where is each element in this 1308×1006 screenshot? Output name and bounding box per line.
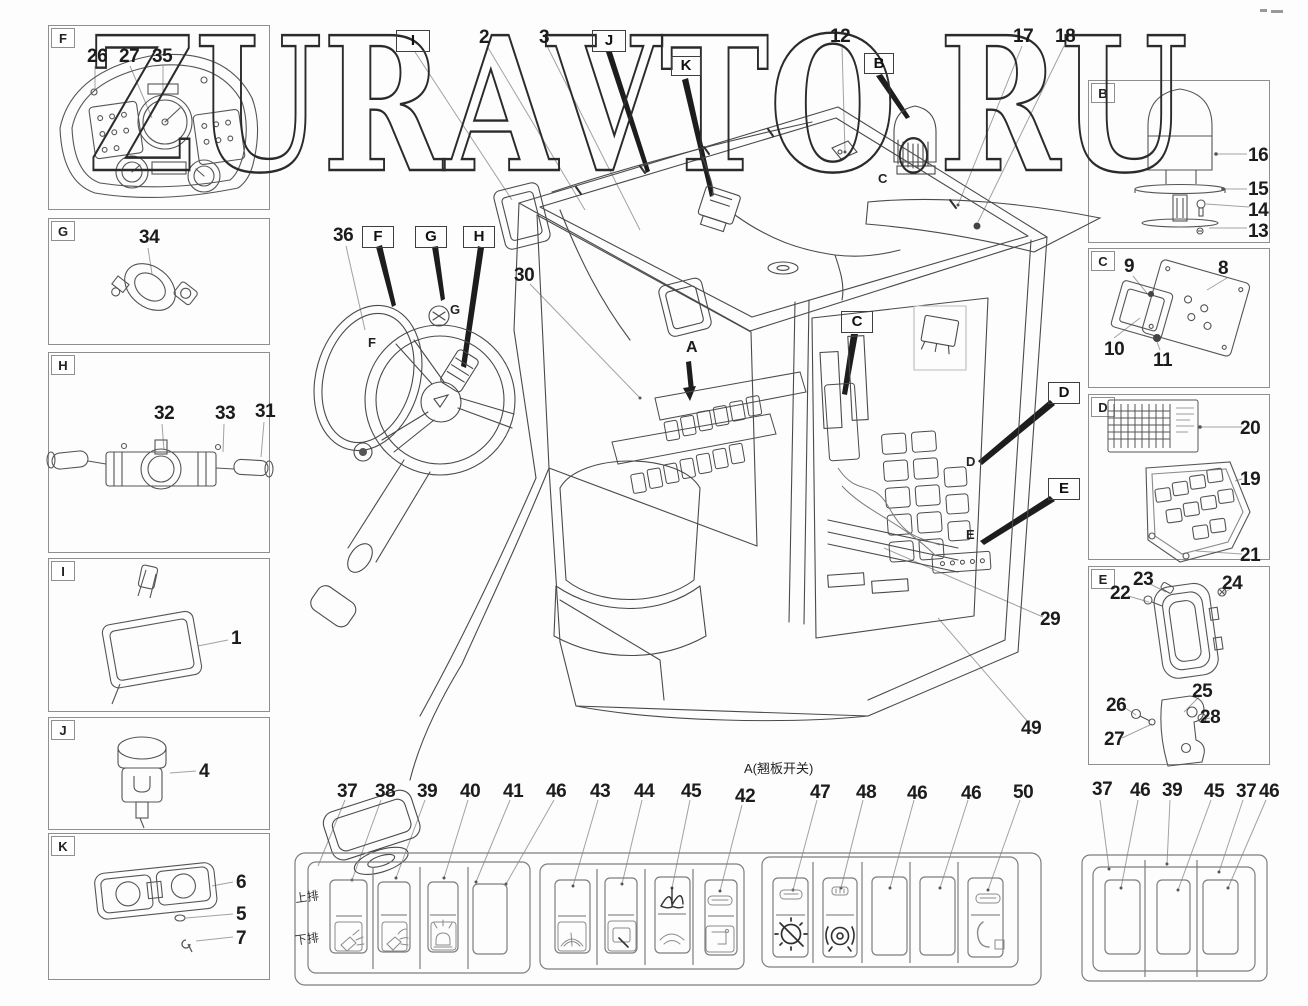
detail-box-H: H [48,352,270,553]
callout-16: 16 [1248,146,1268,165]
callout-15: 15 [1248,180,1268,199]
box-letter: K [51,836,75,856]
callout-6: 6 [236,873,246,892]
section-title: A(翘板开关) [744,762,813,775]
letter-F: F [368,336,376,349]
callout-32: 32 [154,404,174,423]
letter-C: C [878,172,887,185]
callout-26b: 26 [1106,696,1126,715]
callout-46r2: 46 [1259,782,1279,801]
roof-relay-sketch [695,185,741,233]
callout-36: 36 [333,226,353,245]
callout-30: 30 [514,266,534,285]
callout-46: 46 [546,782,566,801]
callout-45r: 45 [1204,782,1224,801]
callout-46r: 46 [1130,781,1150,800]
callout-box-I: I [396,30,430,52]
callout-12: 12 [830,27,850,46]
callout-9: 9 [1124,257,1134,276]
rotating-beacon-icon [431,920,456,950]
callout-7: 7 [236,929,246,948]
beacon-lamp-on-cab [894,106,936,174]
callout-10: 10 [1104,340,1124,359]
box-letter: D [1091,397,1115,417]
callout-19: 19 [1240,470,1260,489]
steering-wheel [298,293,515,885]
callout-42: 42 [735,787,755,806]
callout-46b: 46 [907,784,927,803]
callout-45: 45 [681,782,701,801]
cab-structure [410,107,1047,780]
washer-icon [608,921,636,951]
worklight-front-icon [335,922,364,951]
callout-8: 8 [1218,259,1228,278]
worklight-lamp-sketch [657,277,712,338]
callout-37r2: 37 [1236,782,1256,801]
callout-box-C: C [841,311,873,333]
switch-panels [295,853,1267,985]
callout-14: 14 [1248,201,1268,220]
callout-26: 26 [87,47,107,66]
callout-37r: 37 [1092,780,1112,799]
detail-box-J: J [48,717,270,830]
box-letter: B [1091,83,1115,103]
callout-29: 29 [1040,610,1060,629]
callout-35: 35 [152,47,172,66]
mirror-demist-icon [661,888,683,908]
column-switch-sketch [439,348,479,393]
callout-27: 27 [119,47,139,66]
callout-box-B: B [864,53,894,74]
callout-37: 37 [337,782,357,801]
letter-D: D [966,455,975,468]
callout-46c: 46 [961,784,981,803]
rocker-switch-strip [621,395,772,493]
wiper-icon [558,922,586,951]
callout-box-J: J [592,30,626,52]
callout-box-K: K [671,56,701,76]
roof-harness [492,106,1100,340]
callout-3: 3 [539,28,549,47]
callout-20: 20 [1240,419,1260,438]
interior-electrics [612,372,991,576]
callout-43: 43 [590,782,610,801]
callout-5: 5 [236,905,246,924]
callout-13: 13 [1248,222,1268,241]
box-letter: F [51,28,75,48]
callout-box-D: D [1048,382,1080,404]
callout-A: A [686,340,697,356]
boxed-letter-leaders [376,52,1055,545]
row-label-bottom: 下排 [294,931,319,946]
callout-box-H: H [463,226,495,248]
callout-39: 39 [417,782,437,801]
callout-31: 31 [255,402,275,421]
rocker-switch [330,877,1238,957]
callout-box-G: G [415,226,447,248]
latch-icon [706,896,734,952]
fuse-bank-sketch [881,428,991,577]
box-letter: C [1091,251,1115,271]
callout-40: 40 [460,782,480,801]
callout-48: 48 [856,783,876,802]
callout-44: 44 [634,782,654,801]
callout-23: 23 [1133,570,1153,589]
row-label-top: 上排 [294,889,319,904]
switch-glyphs [335,887,1004,952]
callout-27b: 27 [1104,730,1124,749]
box-letter: I [51,561,75,581]
gear-disable-icon [775,890,807,950]
callout-box-E: E [1048,478,1080,500]
box-letter: J [51,720,75,740]
callout-49: 49 [1021,719,1041,738]
diff-lock-icon [826,887,854,951]
callout-11: 11 [1153,351,1172,370]
diagram-page: F G H I J K B C D E [0,0,1308,1006]
callout-1: 1 [231,629,241,648]
callout-50: 50 [1013,783,1033,802]
callout-18: 18 [1055,27,1075,46]
callout-2: 2 [479,28,489,47]
worklight-lamp-sketch [492,181,551,250]
callout-39r: 39 [1162,781,1182,800]
detail-box-C: C [1088,248,1270,388]
callout-17: 17 [1013,27,1033,46]
box-letter: G [51,221,75,241]
callout-25: 25 [1192,682,1212,701]
callout-box-F: F [362,226,394,248]
ring-nut-sketch [429,306,449,326]
letter-G: G [450,303,460,316]
callout-33: 33 [215,404,235,423]
callout-41: 41 [503,782,523,801]
power-latch-icon [976,894,1004,949]
callout-22: 22 [1110,584,1130,603]
worklight-rear-icon [382,922,408,951]
callout-24: 24 [1222,574,1242,593]
callout-34: 34 [139,228,159,247]
callout-28: 28 [1200,708,1220,727]
callout-47: 47 [810,783,830,802]
callout-4: 4 [199,762,209,781]
callout-21: 21 [1240,546,1260,565]
callout-38: 38 [375,782,395,801]
detail-box-B: B [1088,80,1270,243]
letter-E: E [966,528,975,541]
box-letter: H [51,355,75,375]
